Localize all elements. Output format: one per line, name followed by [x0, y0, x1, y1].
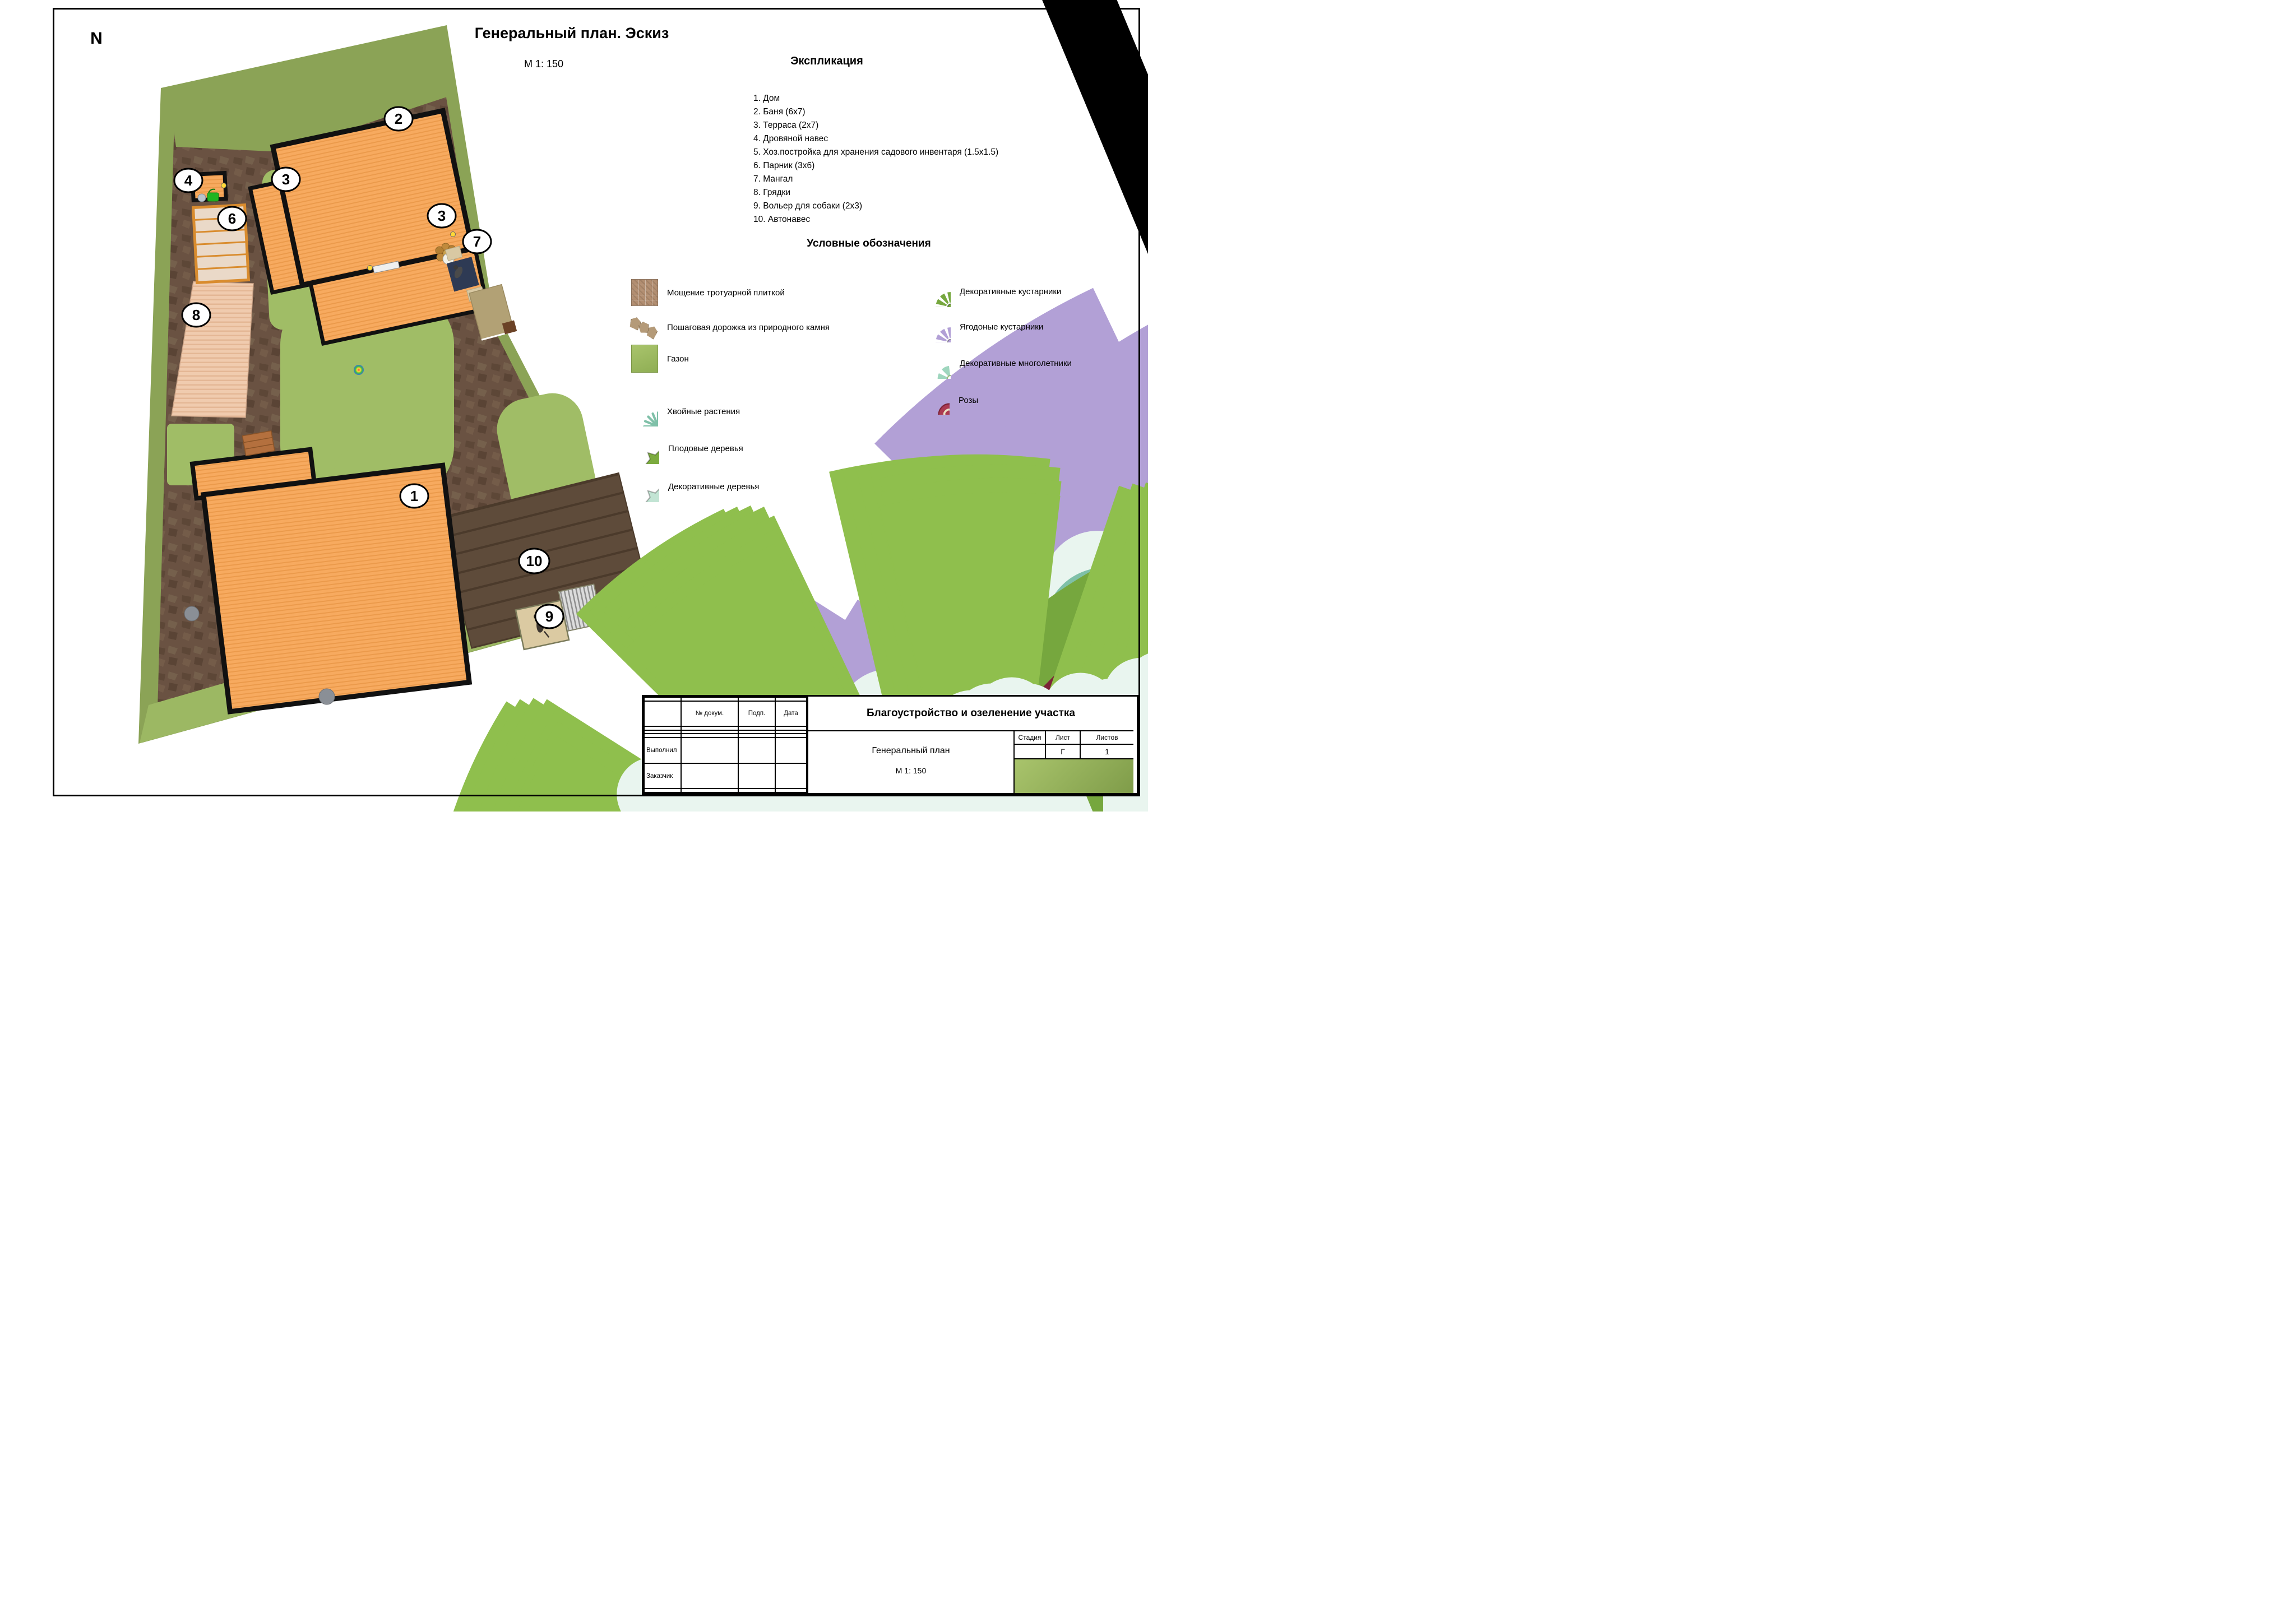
marker-label: 3: [282, 171, 290, 188]
legend-row-conifer: Хвойные растения: [628, 396, 740, 427]
drawing-title-cell: Генеральный план М 1: 150: [807, 731, 1013, 793]
explication-list: 1. Дом 2. Баня (6х7) 3. Терраса (2х7) 4.…: [753, 92, 1101, 226]
marker-label: 10: [526, 553, 543, 569]
rose-icon: [920, 386, 950, 415]
compass-north-label: N: [90, 29, 103, 48]
sign-column-header: Подп.: [738, 701, 775, 727]
decorative-tree-icon: [628, 471, 659, 502]
explication-item: 2. Баня (6х7): [753, 105, 1101, 119]
berry-shrub-icon: [919, 311, 951, 342]
sheet-value: Г: [1046, 745, 1081, 759]
legend-label: Газон: [667, 354, 689, 364]
stage-label: Стадия: [1015, 731, 1046, 745]
legend-row-paving: Мощение тротуарной плиткой: [631, 277, 785, 308]
sheet-label: Лист: [1046, 731, 1081, 745]
legend-label: Декоративные кустарники: [960, 287, 1061, 296]
page-scale: М 1: 150: [493, 58, 594, 70]
stepping-stones-icon: [630, 315, 658, 340]
marker-label: 8: [192, 307, 200, 323]
legend-row-decorative-tree: Декоративные деревья: [628, 471, 759, 502]
drawing-sheet: 1 2 3 3 4 6 7 8: [0, 0, 1148, 811]
explication-item: 1. Дом: [753, 92, 1101, 105]
marker-label: 1: [410, 488, 418, 504]
explication-item: 6. Парник (3х6): [753, 159, 1101, 173]
marker-3a: 3: [272, 168, 300, 191]
marker-6: 6: [218, 207, 246, 230]
logo-green-box: [1015, 759, 1133, 793]
explication-item: 5. Хоз.постройка для хранения садового и…: [753, 146, 1101, 159]
marker-label: 3: [438, 207, 446, 224]
legend-row-rose: Розы: [920, 384, 978, 416]
decorative-shrub-icon: [919, 276, 951, 307]
explication-item: 7. Мангал: [753, 173, 1101, 186]
marker-9: 9: [535, 605, 563, 628]
explication-item: 10. Автонавес: [753, 213, 1101, 226]
legend-label: Декоративные многолетники: [960, 359, 1072, 368]
project-title: Благоустройство и озеленение участка: [807, 697, 1133, 731]
legend-label: Мощение тротуарной плиткой: [667, 288, 785, 298]
title-block: № докум. Подп. Дата Выполнил Заказчик Бл…: [642, 695, 1138, 795]
legend-row-decorative-shrub: Декоративные кустарники: [919, 276, 1061, 307]
explication-item: 4. Дровяной навес: [753, 132, 1101, 146]
lamp: [368, 266, 373, 271]
sheets-label: Листов: [1081, 731, 1133, 745]
legend-title: Условные обозначения: [774, 238, 964, 250]
marker-8: 8: [182, 303, 210, 327]
legend-row-fruit-tree: Плодовые деревья: [628, 433, 743, 464]
lamp: [451, 232, 456, 237]
marker-label: 6: [228, 210, 236, 227]
page-title: Генеральный план. Эскиз: [392, 25, 751, 42]
legend-label: Пошаговая дорожка из природного камня: [667, 323, 830, 332]
legend-label: Плодовые деревья: [668, 444, 743, 453]
stage-sheet-cell: Стадия Лист Листов Г 1: [1013, 731, 1133, 793]
explication-title: Экспликация: [723, 55, 931, 68]
client-label: Заказчик: [644, 763, 681, 789]
ball: [354, 365, 364, 375]
drawing-scale: М 1: 150: [808, 766, 1013, 775]
legend-row-berry-shrub: Ягодоные кустарники: [919, 311, 1043, 342]
fruit-tree-icon: [628, 433, 659, 464]
explication-item: 3. Терраса (2х7): [753, 119, 1101, 132]
explication-item: 8. Грядки: [753, 186, 1101, 200]
conifer-icon: [628, 396, 658, 426]
marker-label: 9: [545, 608, 553, 625]
marker-4: 4: [174, 169, 202, 192]
lawn-swatch: [631, 345, 658, 373]
legend-row-perennial: Декоративные многолетники: [919, 347, 1072, 379]
marker-label: 7: [473, 233, 481, 250]
sheets-value: 1: [1081, 745, 1133, 759]
drawing-title: Генеральный план: [808, 746, 1013, 756]
doc-column-header: № докум.: [681, 701, 738, 727]
manhole: [184, 606, 199, 621]
title-block-left-table: № докум. Подп. Дата Выполнил Заказчик: [644, 697, 807, 793]
legend-label: Декоративные деревья: [668, 482, 759, 491]
legend-row-lawn: Газон: [631, 343, 689, 374]
date-column-header: Дата: [775, 701, 807, 727]
explication-item: 9. Вольер для собаки (2х3): [753, 200, 1101, 213]
legend-label: Ягодоные кустарники: [960, 322, 1043, 332]
marker-10: 10: [519, 549, 549, 573]
lamp: [221, 183, 226, 188]
marker-label: 2: [395, 110, 402, 127]
manhole: [319, 689, 335, 704]
marker-3b: 3: [428, 204, 456, 228]
stage-value: [1015, 745, 1046, 759]
paving-swatch: [631, 279, 658, 306]
perennial-icon: [919, 347, 951, 379]
legend-row-stepping: Пошаговая дорожка из природного камня: [630, 312, 830, 343]
marker-7: 7: [463, 230, 491, 253]
legend-label: Хвойные растения: [667, 407, 740, 416]
marker-2: 2: [385, 107, 413, 131]
marker-label: 4: [184, 172, 193, 189]
legend-label: Розы: [959, 396, 978, 405]
executed-label: Выполнил: [644, 738, 681, 763]
marker-1: 1: [400, 484, 428, 508]
